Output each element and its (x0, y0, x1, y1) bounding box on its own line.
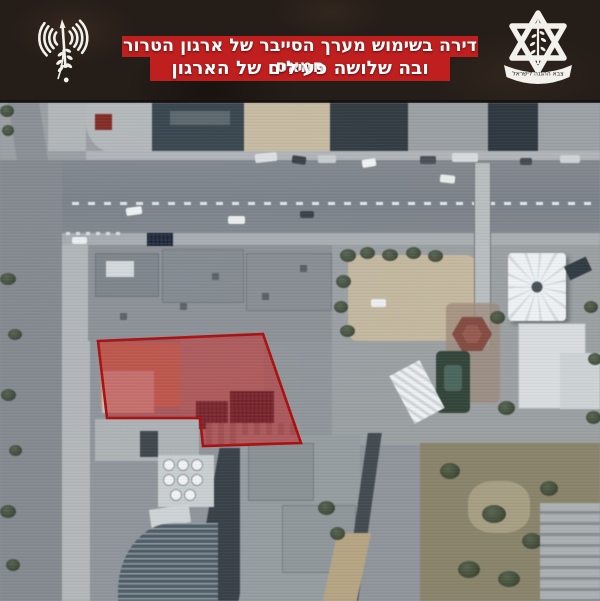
building-sign (95, 114, 112, 130)
infographic: דירה בשימוש מערך הסייבר של ארגון הטרור ח… (0, 0, 600, 601)
white-rooftop (106, 261, 134, 277)
building-block (330, 103, 408, 153)
building-block (408, 103, 488, 153)
car (371, 299, 386, 307)
tree (406, 247, 421, 259)
palm-tree (330, 527, 345, 540)
tree (6, 559, 20, 571)
bush (482, 505, 506, 523)
roof-unit (300, 265, 307, 272)
palm-tree (318, 501, 335, 515)
sidewalk-south (62, 233, 600, 245)
truck (560, 155, 580, 163)
car (228, 216, 245, 224)
roof-unit (212, 273, 219, 280)
tree (8, 329, 22, 340)
tree (498, 401, 515, 415)
tree (336, 275, 351, 288)
crosswalk-dots (66, 232, 124, 235)
rooftop-shadow (170, 111, 230, 125)
solar-panels (147, 233, 173, 246)
water-tank (191, 459, 203, 471)
building-block (538, 103, 600, 153)
headline-line-1: דירה בשימוש מערך הסייבר של ארגון הטרור ח… (122, 36, 478, 57)
water-tank (163, 474, 175, 486)
tree (334, 301, 348, 313)
roof-unit (120, 313, 127, 320)
car (520, 158, 532, 165)
rooftop (162, 249, 244, 303)
tree (0, 505, 16, 518)
rooftop (248, 443, 314, 501)
tree (9, 445, 22, 456)
roof-unit (262, 293, 269, 300)
pond (444, 365, 462, 391)
tree (382, 249, 398, 261)
bush (540, 481, 558, 496)
water-tank (163, 459, 175, 471)
concrete-pad (102, 371, 154, 413)
bush (458, 561, 480, 578)
vertical-road (0, 160, 62, 601)
bush (440, 463, 460, 479)
idf-ribbon-text: צבא ההגנה לישראל (512, 71, 564, 78)
building-block (488, 103, 538, 151)
tree (340, 249, 356, 262)
tree (2, 125, 14, 136)
pavilion-tent (508, 253, 566, 321)
truck (452, 153, 478, 162)
tree (584, 301, 598, 313)
water-tank (177, 474, 189, 486)
car (440, 174, 456, 184)
car (420, 156, 436, 164)
sidewalk-corner (48, 103, 86, 151)
truck (318, 155, 336, 163)
header-band: דירה בשימוש מערך הסייבר של ארגון הטרור ח… (0, 0, 600, 103)
satellite-artwork (0, 103, 600, 601)
sand-lot (243, 103, 331, 155)
satellite-photo (0, 103, 600, 601)
tree (586, 411, 600, 424)
water-tank (191, 474, 203, 486)
bush (522, 533, 542, 549)
tree (0, 105, 14, 117)
tree (490, 311, 505, 324)
tree (1, 389, 16, 401)
water-tank (184, 489, 196, 501)
rooftop (246, 253, 332, 311)
tree (588, 353, 600, 365)
tree (340, 325, 355, 337)
building-block (540, 503, 600, 601)
tree (428, 250, 443, 262)
idf-star-of-david-sword-olive-icon: צבא ההגנה לישראל (494, 9, 582, 93)
lane-markings (72, 202, 600, 205)
water-tank (177, 459, 189, 471)
water-tank (170, 489, 182, 501)
roof-hatch (140, 431, 158, 457)
bush (498, 571, 520, 587)
tree (360, 247, 375, 259)
car (72, 237, 87, 244)
roof-unit (180, 303, 187, 310)
ribbed-building (118, 523, 218, 601)
tree (0, 273, 16, 285)
headline-line-2: ובה שלושה פעילים של הארגון (150, 57, 450, 81)
sidewalk-west (62, 245, 90, 601)
car (300, 211, 314, 218)
